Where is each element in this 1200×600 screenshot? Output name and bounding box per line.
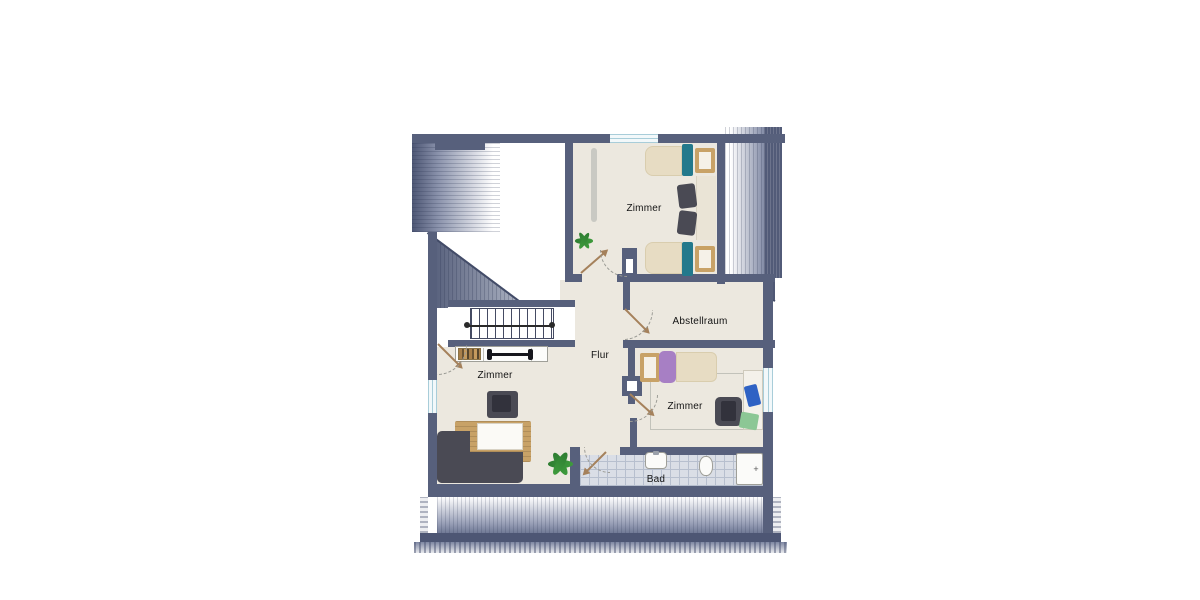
room-label-zimmer-left: Zimmer [467,370,523,382]
room-label-bad: Bad [640,474,672,486]
window-right [763,368,773,412]
wall-zimmer-top-left [565,143,573,280]
wall-abstellraum-left [623,282,630,310]
wall-shaft-box [622,376,642,396]
bed-top-1-footboard [682,144,693,176]
stairs-direction-dot-right [549,322,555,328]
bed-right-pillow [659,351,676,383]
roof-eave-left [420,497,428,533]
room-label-zimmer-top: Zimmer [616,203,672,215]
sideboard-divider [483,348,484,361]
chair-top-2 [677,210,698,236]
wall-stairs-top [448,300,575,307]
table-between-beds [696,176,716,240]
roof-gable-edge-right [764,127,782,278]
bed-right-headboard-inner [644,357,656,378]
window-left [428,380,437,413]
toilet [699,456,713,476]
roof-eave-bottom [414,542,787,553]
roof-slope-bottom [437,497,763,533]
room-label-zimmer-right: Zimmer [657,401,713,413]
wall-top-left-step [435,143,485,150]
wardrobe-strip [591,148,597,222]
office-chair-seat [721,401,736,421]
wall-zimmer-top-bottom [617,274,775,282]
desk-pad [739,412,760,431]
wall-top [412,134,785,143]
sofa-bottom-section [437,452,523,483]
window-top [610,134,658,143]
shower-drain-mark: + [750,465,762,475]
bed-top-2-headboard-inner [699,250,711,268]
tv-icon [489,353,529,356]
wall-zimmer-top-right [717,143,725,284]
room-label-flur: Flur [578,350,622,362]
wall-zimmer-top-bottom-stub [565,274,582,282]
bed-blanket [477,423,523,450]
plant-icon [548,451,573,476]
bed-right-blanket [676,352,717,382]
stairs-direction-line [468,325,552,327]
wall-left [428,232,437,484]
floor-plan-canvas: + Zimmer Abstellraum Flur Zimmer Zimmer … [0,0,1200,600]
room-label-abstellraum: Abstellraum [655,316,745,328]
wall-bottom-left [428,484,580,497]
wall-bad-bottom [570,486,773,497]
tv-end-right [528,349,533,360]
bed-top-2-footboard [682,242,693,276]
faucet [653,451,659,455]
roof-slope-top-left [412,143,500,232]
roof-eave-right [773,497,781,533]
door-frame-notch [626,259,633,273]
stairs [470,308,554,339]
wall-zimmer-right-left-stub [630,418,637,450]
roof-ridge-bottom [420,533,781,542]
wall-abstellraum-bottom [623,340,775,348]
plant-icon [575,232,593,250]
wall-zimmer-right-left-upper [628,348,635,378]
bed-top-2 [645,242,682,274]
bed-top-1-headboard-inner [699,152,711,169]
chair-top-1 [677,183,698,209]
stairs-direction-dot-left [464,322,470,328]
bed-top-1 [645,146,682,176]
wall-right-lower [763,455,773,533]
tv-end-left [487,349,492,360]
armchair-seat [492,395,511,412]
